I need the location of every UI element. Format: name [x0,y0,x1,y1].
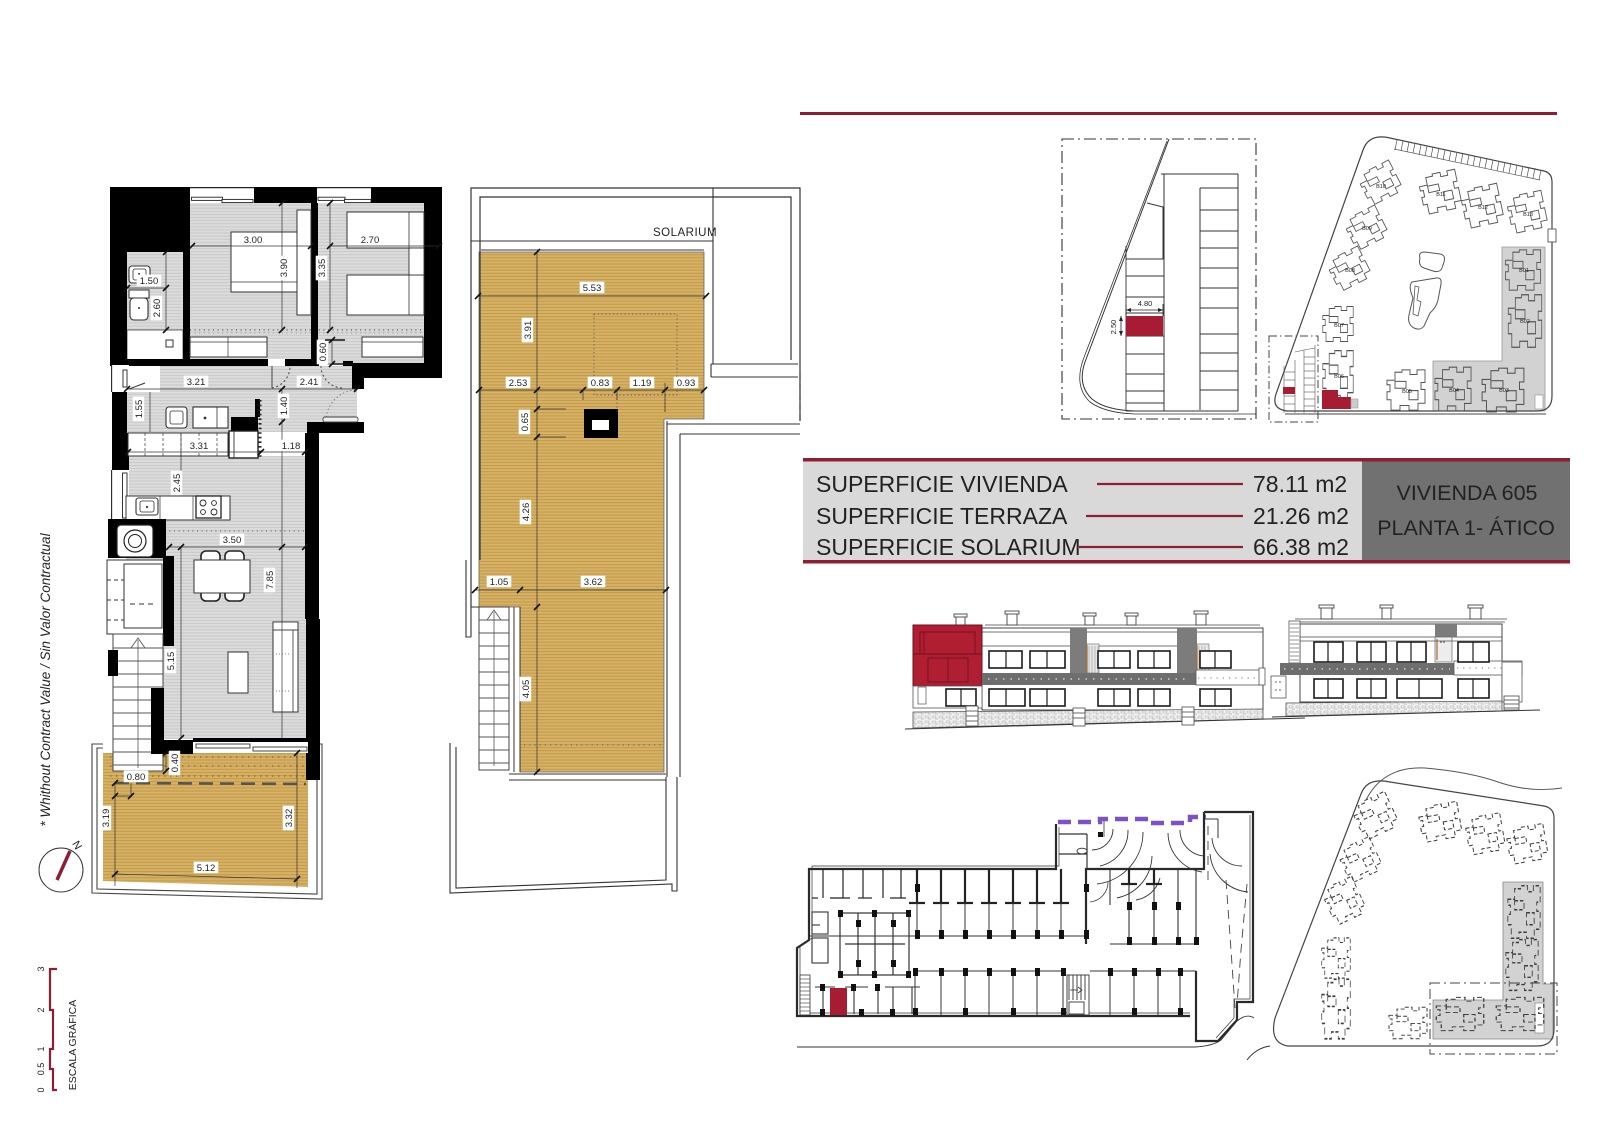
svg-text:4.05: 4.05 [521,680,532,699]
svg-text:5.53: 5.53 [583,283,602,294]
svg-text:3.32: 3.32 [284,809,295,828]
svg-text:3.90: 3.90 [279,259,290,278]
svg-text:ESCALA GRÁFICA: ESCALA GRÁFICA [66,1000,79,1090]
svg-text:4.80: 4.80 [1138,299,1153,308]
svg-text:2.60: 2.60 [152,299,163,318]
svg-text:B11: B11 [1436,192,1445,198]
svg-text:3.00: 3.00 [244,235,263,246]
svg-text:0.60: 0.60 [318,343,329,362]
svg-text:4.26: 4.26 [521,503,532,522]
svg-text:B12: B12 [1478,205,1488,211]
svg-text:B04: B04 [1449,388,1459,394]
svg-text:1.05: 1.05 [490,577,509,588]
svg-text:3.21: 3.21 [187,377,206,388]
svg-text:2.70: 2.70 [361,235,380,246]
svg-text:1.18: 1.18 [282,441,301,452]
svg-text:3.50: 3.50 [223,535,242,546]
svg-text:3.62: 3.62 [584,577,603,588]
svg-text:PLANTA 1- ÁTICO: PLANTA 1- ÁTICO [1377,515,1555,540]
svg-text:0.40: 0.40 [170,754,181,773]
svg-text:7.85: 7.85 [265,571,276,590]
svg-text:3.31: 3.31 [190,441,209,452]
svg-text:SUPERFICIE SOLARIUM: SUPERFICIE SOLARIUM [816,534,1081,560]
svg-text:66.38 m2: 66.38 m2 [1253,534,1349,560]
svg-text:2.50: 2.50 [1109,320,1118,335]
svg-text:2: 2 [36,1007,46,1012]
svg-text:1.19: 1.19 [633,378,652,389]
svg-text:B08: B08 [1345,268,1355,274]
svg-text:3: 3 [36,966,46,971]
svg-text:SUPERFICIE TERRAZA: SUPERFICIE TERRAZA [816,503,1068,529]
svg-text:B01: B01 [1519,268,1529,274]
svg-text:B13: B13 [1523,212,1533,218]
svg-text:B10: B10 [1376,184,1386,190]
svg-text:B02: B02 [1520,319,1530,325]
svg-text:21.26 m2: 21.26 m2 [1253,503,1349,529]
svg-text:3.19: 3.19 [101,809,112,828]
svg-text:SUPERFICIE VIVIENDA: SUPERFICIE VIVIENDA [816,471,1068,497]
svg-text:0.83: 0.83 [591,378,610,389]
svg-text:3.35: 3.35 [317,259,328,278]
svg-text:B09: B09 [1362,226,1372,232]
svg-text:0: 0 [36,1087,46,1092]
svg-text:B03: B03 [1499,388,1509,394]
svg-text:* Whithout Contract Value / Si: * Whithout Contract Value / Sin Valor Co… [38,532,53,826]
svg-text:B05: B05 [1402,389,1412,395]
svg-text:VIVIENDA 605: VIVIENDA 605 [1396,481,1537,505]
svg-text:0.65: 0.65 [520,413,531,432]
svg-text:2.53: 2.53 [509,378,528,389]
svg-text:B06: B06 [1334,374,1344,380]
svg-text:78.11 m2: 78.11 m2 [1253,471,1347,497]
svg-text:1.50: 1.50 [140,276,159,287]
svg-text:1.40: 1.40 [279,397,290,416]
svg-text:3.91: 3.91 [523,321,534,340]
svg-text:2.45: 2.45 [172,474,183,493]
svg-text:SOLARIUM: SOLARIUM [653,227,717,239]
svg-text:0.5: 0.5 [36,1063,46,1076]
svg-text:2.41: 2.41 [300,377,319,388]
svg-text:B07: B07 [1334,323,1344,329]
svg-text:5.12: 5.12 [197,863,216,874]
svg-text:0.93: 0.93 [677,378,696,389]
svg-text:1: 1 [36,1046,46,1051]
svg-text:0.80: 0.80 [127,772,146,783]
svg-text:1.55: 1.55 [134,400,145,419]
svg-text:5.15: 5.15 [166,652,177,671]
